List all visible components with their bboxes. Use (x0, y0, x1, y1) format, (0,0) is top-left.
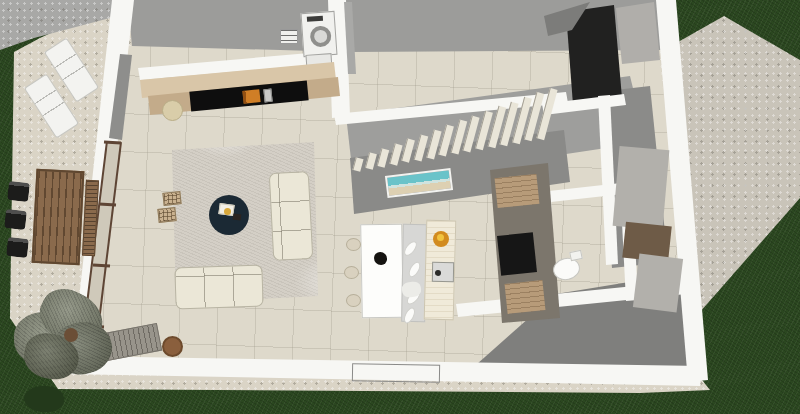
sofa-bottom (174, 264, 263, 309)
garden-shrub (24, 386, 64, 412)
ottoman (157, 207, 176, 223)
terrace-dining-table (32, 169, 85, 265)
decor-speaker (263, 89, 272, 103)
dining-chair (346, 294, 361, 307)
terrace-chair (7, 181, 30, 202)
drying-rack (280, 29, 298, 44)
ottoman (162, 191, 181, 206)
washer-door (309, 25, 331, 47)
washer-control-panel (307, 16, 323, 22)
dining-table (360, 224, 404, 319)
faucet (435, 270, 441, 276)
tree-trunk (64, 328, 78, 342)
terrace-chair (4, 209, 27, 230)
fruit-bowl (433, 231, 449, 247)
leather-pouf (162, 336, 183, 357)
terrace-chair (6, 237, 29, 258)
black-fruit-bowl (374, 252, 387, 265)
cooktop (497, 232, 537, 276)
door-opening-marker (352, 363, 440, 383)
dining-chair (344, 266, 359, 279)
coffee-table-decor (233, 213, 242, 220)
counter-wood-section (505, 280, 546, 314)
sofa-right (269, 171, 314, 261)
decor-orange-box (242, 89, 260, 104)
garden-tree (14, 292, 114, 382)
floorplan-3d-viewport[interactable] (0, 0, 800, 414)
dining-chair (346, 238, 361, 251)
slatted-screen (633, 254, 683, 313)
counter-wood-section (495, 174, 540, 208)
round-basket-pouf (162, 100, 183, 121)
kitchen-sink (432, 262, 454, 282)
washing-machine (301, 11, 338, 57)
decor-lemon (224, 208, 231, 215)
slatted-screen (613, 146, 670, 230)
